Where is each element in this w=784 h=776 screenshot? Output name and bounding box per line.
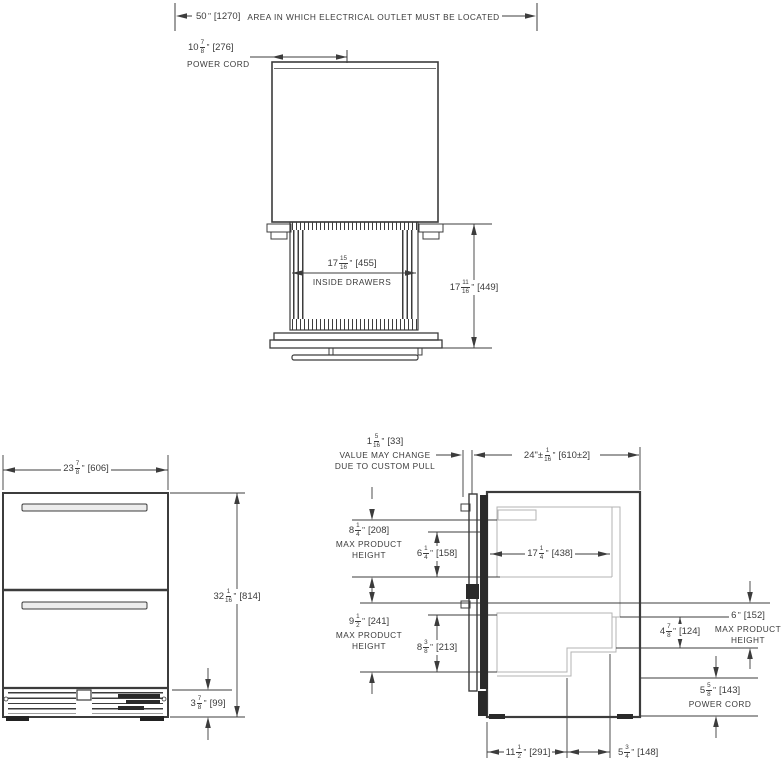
front-width-dim: 2378"[606] xyxy=(20,461,152,476)
grille-height-dim: 378"[99] xyxy=(178,696,238,711)
bottom-vent-hatch xyxy=(292,319,418,330)
power-cord-top-label: POWER CORD xyxy=(187,59,267,69)
step-height-dim: 478"[124] xyxy=(652,624,708,639)
drawer-box-outline xyxy=(290,222,418,330)
side-view-gray-interior xyxy=(497,507,620,676)
top-view-lines xyxy=(175,3,537,360)
front-height-dim: 32116"[814] xyxy=(194,589,280,604)
grille-label-block-1 xyxy=(118,694,160,698)
floor-depth-dim: 1112"[291] xyxy=(489,745,567,760)
outlet-area-note: 50"[1270] AREA IN WHICH ELECTRICAL OUTLE… xyxy=(194,9,534,24)
pull-dim: 1516"[33] xyxy=(365,434,406,449)
side-view-lines xyxy=(352,447,770,758)
upper-max-product: 814"[208] MAX PRODUCT HEIGHT xyxy=(333,523,405,560)
left-bracket-inner xyxy=(271,232,287,239)
inside-drawers-dim: 171516"[455] xyxy=(290,256,414,271)
drawer-depth-dim: 1714"[438] xyxy=(510,546,590,561)
inside-drawers-label: INSIDE DRAWERS xyxy=(290,277,414,287)
lower-drawer-zone-outer xyxy=(497,617,616,676)
right-bracket-inner xyxy=(423,232,439,239)
upper-drawer-notch xyxy=(498,510,536,520)
side-view-arrowheads xyxy=(369,452,753,755)
right-max-product: 6"[152] MAX PRODUCT HEIGHT xyxy=(712,608,784,645)
lower-drawer-handle xyxy=(22,602,147,609)
cabinet-top-outline xyxy=(272,62,438,222)
right-drawer-rails xyxy=(402,230,415,319)
side-view-black-parts xyxy=(466,495,633,719)
lower-inner-dim: 838"[213] xyxy=(410,640,464,655)
lower-max-product: 912"[241] MAX PRODUCT HEIGHT xyxy=(333,614,405,651)
power-cord-top-dim: 1078"[276] xyxy=(186,40,266,55)
cabinet-side-outline xyxy=(487,492,640,717)
drawing-linework xyxy=(0,0,784,776)
appliance-dimension-drawing: 50"[1270] AREA IN WHICH ELECTRICAL OUTLE… xyxy=(0,0,784,776)
handle-bar xyxy=(292,355,418,360)
lower-drawer-zone xyxy=(497,613,620,672)
left-bracket-outer xyxy=(267,224,291,232)
front-panel-lower xyxy=(270,340,442,348)
grille-right xyxy=(92,692,163,714)
custom-pull-note: 1516"[33] VALUE MAY CHANGE DUE TO CUSTOM… xyxy=(333,434,437,471)
left-drawer-rails xyxy=(293,230,306,319)
step-depth-dim: 534"[148] xyxy=(616,745,686,760)
right-bracket-outer xyxy=(419,224,443,232)
front-panel-upper xyxy=(274,333,438,340)
upper-drawer-handle xyxy=(22,504,147,511)
upper-inner-dim: 614"[158] xyxy=(410,546,464,561)
upper-drawer-zone xyxy=(497,507,620,617)
grille-label-block-2 xyxy=(126,700,160,704)
grille-center-clip xyxy=(77,690,91,700)
handle-leg-left xyxy=(329,348,333,355)
grille-left xyxy=(8,692,76,714)
top-depth-dim: 171116"[449] xyxy=(432,280,516,295)
side-depth-dim: 24"±116"[610±2] xyxy=(512,448,602,463)
top-vent-hatch xyxy=(292,222,418,230)
handle-leg-right xyxy=(418,348,422,355)
outlet-area-dim: 50"[1270] xyxy=(194,9,242,24)
side-power-cord: 558"[143] POWER CORD xyxy=(684,683,756,709)
outlet-area-label: AREA IN WHICH ELECTRICAL OUTLET MUST BE … xyxy=(247,12,499,22)
grille-label-block-3 xyxy=(118,706,144,710)
